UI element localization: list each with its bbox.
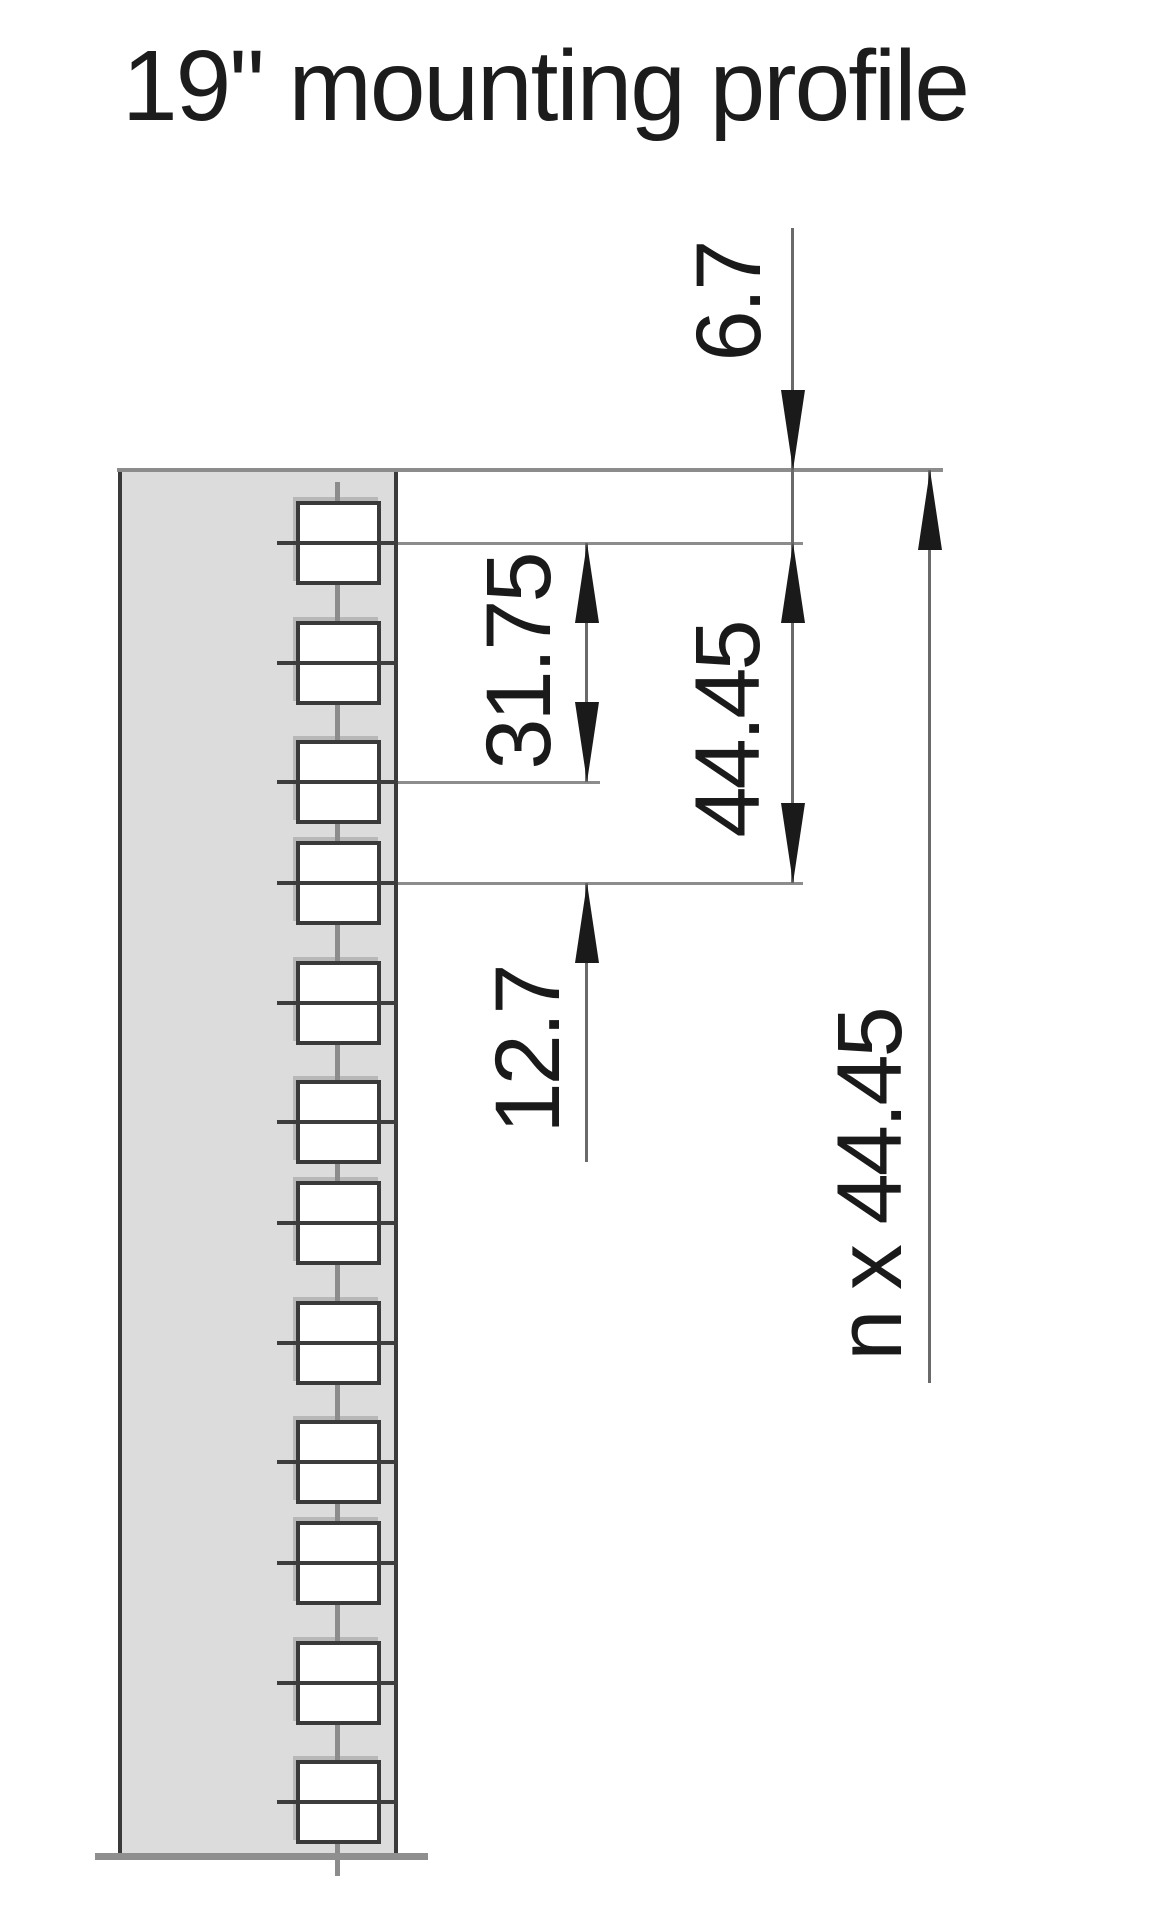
hole-cross-line xyxy=(277,1120,398,1124)
hole-cross-line xyxy=(277,1561,398,1565)
arrow-up-icon xyxy=(575,543,599,623)
arrow-down-icon xyxy=(781,803,805,883)
dimension-value: n x 44.45 xyxy=(824,1009,916,1361)
hole-cross-line xyxy=(277,780,398,784)
hole-cross-line xyxy=(277,1221,398,1225)
dimension-value: 12.7 xyxy=(482,966,574,1133)
dimension-value: 6.7 xyxy=(683,243,775,362)
extension-line xyxy=(398,542,803,545)
dimension-value: 44.45 xyxy=(682,622,774,837)
dimension-line xyxy=(928,470,931,1383)
arrow-down-icon xyxy=(575,702,599,782)
hole-cross-line xyxy=(277,1341,398,1345)
hole-cross-line xyxy=(277,1001,398,1005)
arrow-down-icon xyxy=(781,390,805,470)
profile-bottom-break-line xyxy=(95,1853,428,1860)
arrow-up-icon xyxy=(918,470,942,550)
extension-line xyxy=(398,882,803,885)
dimension-value: 31.75 xyxy=(473,554,565,769)
arrow-up-icon xyxy=(781,543,805,623)
extension-line xyxy=(398,781,600,784)
drawing-title: 19" mounting profile xyxy=(122,36,968,136)
hole-cross-line xyxy=(277,541,398,545)
hole-cross-line xyxy=(277,1800,398,1804)
arrow-up-icon xyxy=(575,883,599,963)
hole-cross-line xyxy=(277,1460,398,1464)
hole-cross-line xyxy=(277,881,398,885)
hole-cross-line xyxy=(277,1681,398,1685)
profile-top-edge-line xyxy=(117,468,943,472)
drawing-canvas: 19" mounting profile 6.7 44.45 31.75 12.… xyxy=(0,0,1150,1920)
hole-cross-line xyxy=(277,661,398,665)
